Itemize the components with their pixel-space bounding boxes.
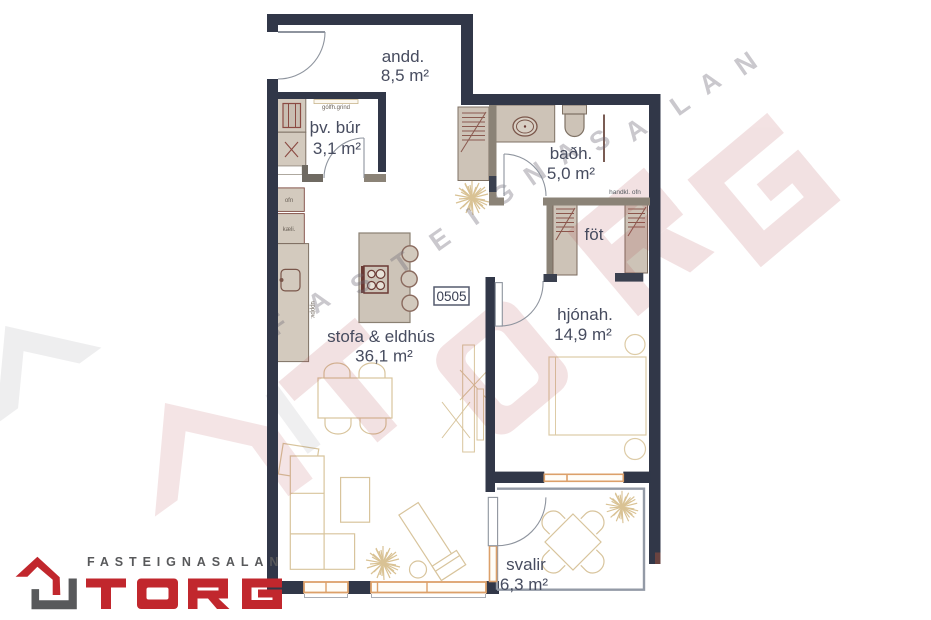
svg-text:hjónah.: hjónah. — [557, 305, 613, 324]
svg-text:þv. búr: þv. búr — [310, 118, 361, 137]
svg-text:handkl. ofn: handkl. ofn — [609, 189, 641, 196]
svg-text:36,1 m²: 36,1 m² — [355, 347, 413, 366]
svg-text:3,1 m²: 3,1 m² — [313, 139, 362, 158]
svg-text:kæli.: kæli. — [283, 227, 296, 233]
svg-text:0505: 0505 — [436, 289, 466, 304]
svg-text:uppþv.: uppþv. — [309, 301, 315, 319]
svg-text:föt: föt — [585, 225, 604, 244]
svg-text:gólfh.grind: gólfh.grind — [322, 105, 350, 111]
svg-text:FASTEIGNASALAN: FASTEIGNASALAN — [87, 555, 284, 569]
svg-text:5,0 m²: 5,0 m² — [547, 164, 596, 183]
svg-text:ofn: ofn — [285, 198, 293, 204]
svg-text:svalir: svalir — [506, 555, 546, 574]
svg-text:6,3 m²: 6,3 m² — [500, 575, 549, 594]
svg-text:andd.: andd. — [382, 47, 425, 66]
svg-text:baðh.: baðh. — [550, 144, 593, 163]
svg-text:8,5 m²: 8,5 m² — [381, 66, 430, 85]
svg-text:stofa & eldhús: stofa & eldhús — [327, 327, 435, 346]
svg-text:14,9 m²: 14,9 m² — [554, 325, 612, 344]
